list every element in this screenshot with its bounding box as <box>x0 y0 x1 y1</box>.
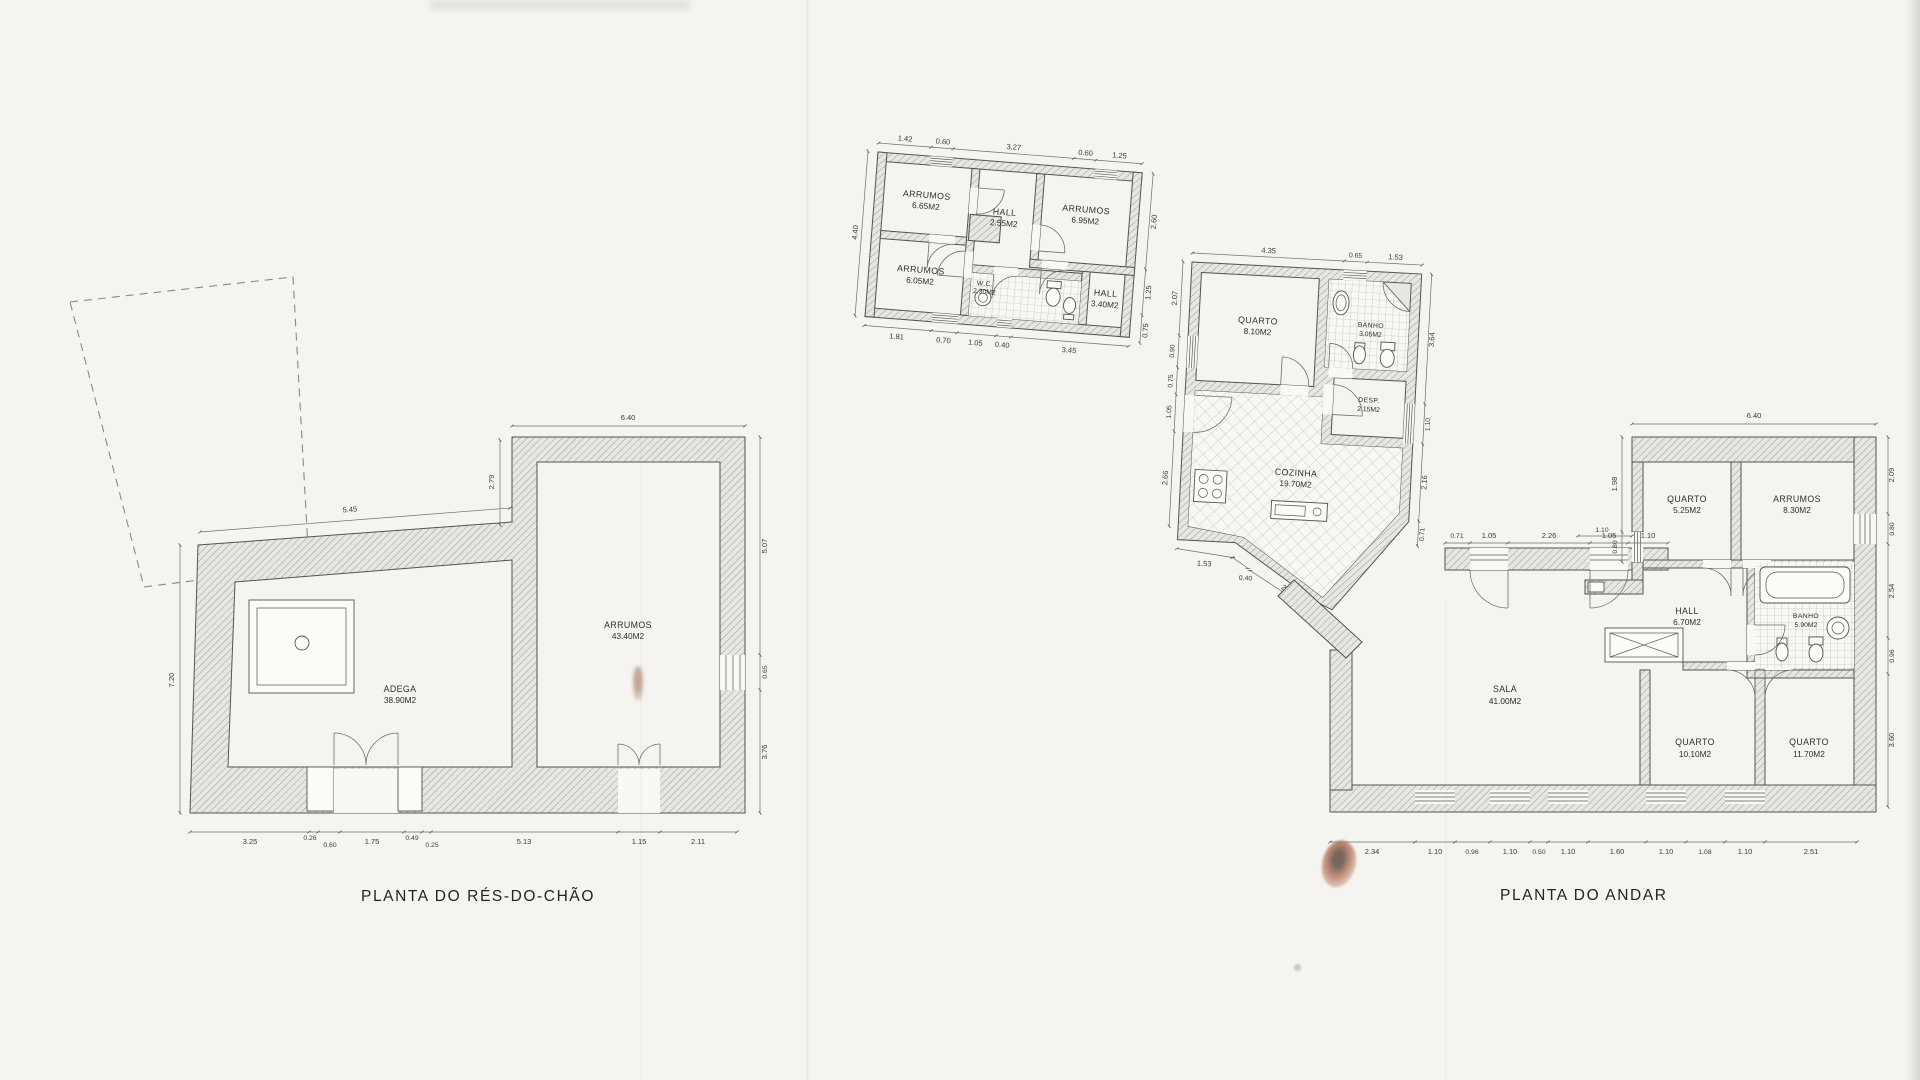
dim-label: 5.45 <box>342 505 357 515</box>
room-area: 3.05M2 <box>1359 331 1382 339</box>
scanned-floor-plan-page: ARRUMOS 6.65M2 ARRUMOS 6.95M2 HALL 2.55M… <box>0 0 1920 1080</box>
gray-speck <box>1294 964 1301 971</box>
room-name: ARRUMOS <box>903 188 951 202</box>
scanner-streak <box>430 0 690 10</box>
toilet <box>1809 644 1823 662</box>
dim-label: 1.10 <box>1503 847 1518 856</box>
wall <box>1330 650 1352 790</box>
door-gap <box>1328 367 1352 378</box>
wall <box>1632 437 1876 462</box>
dim-label: 2.51 <box>1804 847 1819 856</box>
dim-label: 1.60 <box>1610 847 1625 856</box>
door-gap <box>1280 385 1308 396</box>
room-area: 10.10M2 <box>1679 749 1712 759</box>
room-name: W.C. <box>977 280 994 288</box>
dim-label: 1.05 <box>1482 531 1497 540</box>
room-name: QUARTO <box>1667 494 1707 504</box>
door-arc <box>1470 570 1508 608</box>
ground-floor-plan: ADEGA 38.90M2 ARRUMOS 43.40M2 6.40 5.45 … <box>40 260 830 920</box>
dim-label: 7.20 <box>167 673 176 688</box>
dim-label: 1.10 <box>1561 847 1576 856</box>
dim-line <box>1232 558 1249 569</box>
dim-label: 2.07 <box>1170 291 1180 306</box>
dim-label: 1.81 <box>889 331 904 341</box>
room-name: QUARTO <box>1675 737 1715 747</box>
dim-label: 0.49 <box>405 835 418 842</box>
wall <box>1854 437 1876 812</box>
dim-label: 0.90 <box>1169 344 1177 358</box>
door-gap <box>1703 560 1731 568</box>
dim-label: 0.71 <box>1419 527 1427 541</box>
dim-label: 0.65 <box>762 665 769 678</box>
bidet-base <box>1063 314 1073 320</box>
dim-label: 3.45 <box>1061 345 1076 355</box>
dim-label: 0.60 <box>1078 148 1093 158</box>
dim-label: 1.10 <box>1424 418 1432 432</box>
room-area: 8.10M2 <box>1243 326 1272 337</box>
window <box>720 655 745 690</box>
plan-title-first: PLANTA DO ANDAR <box>1500 887 1668 905</box>
door-gap <box>1727 662 1755 670</box>
dim-label: 2.26 <box>1542 531 1557 540</box>
room-area: 41.00M2 <box>1489 696 1522 706</box>
dim-label: 2.66 <box>1160 470 1170 485</box>
room-area: 11.70M2 <box>1793 749 1825 759</box>
dim-label: 1.53 <box>1197 559 1212 569</box>
wall <box>1731 462 1741 560</box>
door-gap <box>1747 625 1755 655</box>
dim-label: 1.53 <box>1388 252 1403 262</box>
dim-label: 2.54 <box>1887 584 1896 599</box>
room-name: ARRUMOS <box>1062 203 1110 217</box>
toilet-tank <box>1047 281 1062 289</box>
dim-label: 0.80 <box>1889 522 1896 535</box>
dim-label: 0.25 <box>425 842 438 849</box>
door-jamb <box>307 767 334 811</box>
dim-label: 0.65 <box>1349 252 1363 260</box>
dim-label: 3.27 <box>1006 142 1021 152</box>
room-area: 5.90M2 <box>1795 622 1818 629</box>
dim-label: 1.10 <box>1641 531 1656 540</box>
wall <box>1755 678 1765 785</box>
wall <box>1632 462 1643 532</box>
room-name: BANHO <box>1358 322 1385 330</box>
wall <box>1640 670 1650 785</box>
room-area: 38.90M2 <box>384 695 417 705</box>
door-gap <box>1183 395 1195 432</box>
room-name: BANHO <box>1793 613 1819 620</box>
door-gap <box>334 769 398 813</box>
room-name: HALL <box>1093 287 1117 299</box>
sink <box>1827 617 1849 639</box>
room-name: HALL <box>993 206 1017 218</box>
room-name: DESP. <box>1358 397 1380 405</box>
room-area: 43.40M2 <box>612 631 645 641</box>
dim-label: 3.64 <box>1427 332 1437 347</box>
dim-label: 5.07 <box>760 539 769 554</box>
dim-label: 0.50 <box>1532 849 1545 856</box>
dim-label: 5.13 <box>517 837 532 846</box>
dim-label: 1.15 <box>632 837 647 846</box>
dim-label: 1.25 <box>1112 150 1127 160</box>
dim-label: 2.16 <box>1419 475 1429 490</box>
dim-label: 3.60 <box>1887 733 1896 748</box>
dim-label: 0.26 <box>303 835 316 842</box>
dim-label: 0.60 <box>935 137 950 147</box>
dim-label: 2.11 <box>691 837 705 846</box>
drain <box>295 636 309 650</box>
toilet <box>1380 349 1395 368</box>
room-name: QUARTO <box>1238 315 1278 327</box>
door-gap <box>618 769 660 813</box>
dim-label: 1.05 <box>1166 405 1174 419</box>
first-plan-kitchen-wing: QUARTO 8.10M2 BANHO 3.05M2 DESP. 2.15M2 … <box>1153 241 1440 630</box>
bidet <box>1776 643 1788 661</box>
stove <box>1193 469 1227 503</box>
dim-label: 3.76 <box>760 745 769 760</box>
dim-label: 1.05 <box>968 338 983 348</box>
dim-label: 1.08 <box>1698 849 1711 856</box>
dim-label: 1.10 <box>1738 847 1753 856</box>
dim-label: 6.40 <box>621 413 636 422</box>
dim-label: 2.79 <box>487 475 496 490</box>
room-name: QUARTO <box>1789 737 1829 747</box>
plan-title-ground: PLANTA DO RÉS-DO-CHÃO <box>361 888 595 906</box>
door-jamb <box>398 767 422 811</box>
dim-label: 0.80 <box>1612 540 1619 553</box>
room-area: 3.40M2 <box>1091 298 1120 310</box>
dim-label: 0.40 <box>995 340 1010 350</box>
double-door-arc <box>618 744 660 765</box>
dim-label: 4.35 <box>1261 246 1276 256</box>
dim-label: 0.71 <box>1450 533 1463 540</box>
dim-label: 1.75 <box>365 837 380 846</box>
dim-label: 1.98 <box>1610 477 1619 492</box>
dim-label: 2.60 <box>1149 214 1159 229</box>
room-area: 8.30M2 <box>1783 505 1811 515</box>
room-name: ADEGA <box>384 684 417 694</box>
dim-label: 1.10 <box>1659 847 1674 856</box>
room-area: 5.25M2 <box>1673 505 1701 515</box>
dim-label: 1.42 <box>898 134 913 144</box>
dim-label: 0.96 <box>1889 649 1896 662</box>
dim-label: 0.40 <box>1239 575 1253 583</box>
room-area: 6.05M2 <box>906 275 935 287</box>
kitchen-sink <box>1271 500 1328 521</box>
door-gap <box>1470 548 1508 570</box>
dim-label: 0.60 <box>323 842 336 849</box>
room-name: ARRUMOS <box>604 620 652 630</box>
door-arc <box>1703 568 1731 596</box>
dim-label: 2.34 <box>1365 847 1380 856</box>
dim-line <box>1177 549 1233 558</box>
door-arc <box>1281 357 1310 386</box>
dim-label: 4.40 <box>850 225 860 240</box>
room-name: ARRUMOS <box>1773 494 1821 504</box>
dim-label: 0.70 <box>936 335 951 345</box>
double-door-arc <box>334 733 398 765</box>
room-area: 2.15M2 <box>1357 406 1380 414</box>
dim-label: 6.40 <box>1747 411 1762 420</box>
room-name: SALA <box>1493 684 1517 694</box>
first-floor-plan: QUARTO 8.10M2 BANHO 3.05M2 DESP. 2.15M2 … <box>1130 230 1920 920</box>
dim-label: 0.75 <box>1167 374 1175 388</box>
room-area: 6.65M2 <box>912 200 941 212</box>
dim-label: 1.10 <box>1428 847 1443 856</box>
dim-label: 2.09 <box>1887 468 1896 483</box>
wall <box>1330 785 1876 812</box>
room-name: HALL <box>1675 606 1699 616</box>
room-area: 6.70M2 <box>1673 617 1701 627</box>
wall-pier <box>1588 582 1604 592</box>
dim-label: 1.05 <box>1602 531 1617 540</box>
door-arc <box>1039 225 1067 253</box>
room-area: 6.95M2 <box>1071 214 1100 226</box>
dim-label: 3.25 <box>243 837 258 846</box>
room-area: 19.70M2 <box>1279 478 1312 490</box>
room-name: ARRUMOS <box>897 263 945 277</box>
dim-label: 0.96 <box>1465 849 1478 856</box>
door-gap <box>1322 384 1334 414</box>
